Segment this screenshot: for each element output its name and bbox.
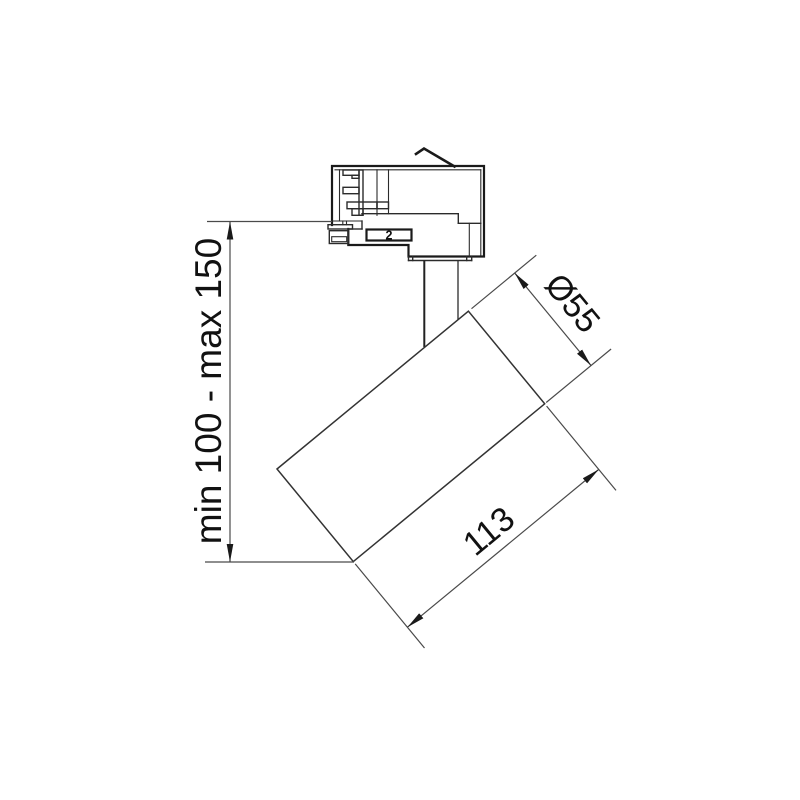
dimension-diameter-label: Ø55 [537,267,607,341]
adapter-inner-walls [335,170,481,257]
adapter-housing-outline [332,166,484,257]
spotlight-technical-drawing: 2 min 100 - max 150 [0,0,800,800]
track-adapter: 2 [328,149,484,261]
dimension-length-label: 113 [456,500,522,564]
technical-drawing-page: 2 min 100 - max 150 [0,0,800,800]
extension-line-length-far [547,406,616,490]
extension-line-diameter-far [546,349,611,403]
adapter-contact-block [343,170,389,216]
adapter-lock-parts [328,221,353,244]
extension-line-length-near [355,564,424,648]
adapter-lever [416,149,455,167]
extension-line-diameter-near [472,255,537,309]
adapter-marking-label: 2 [386,228,393,242]
dimension-height-label: min 100 - max 150 [188,238,229,544]
